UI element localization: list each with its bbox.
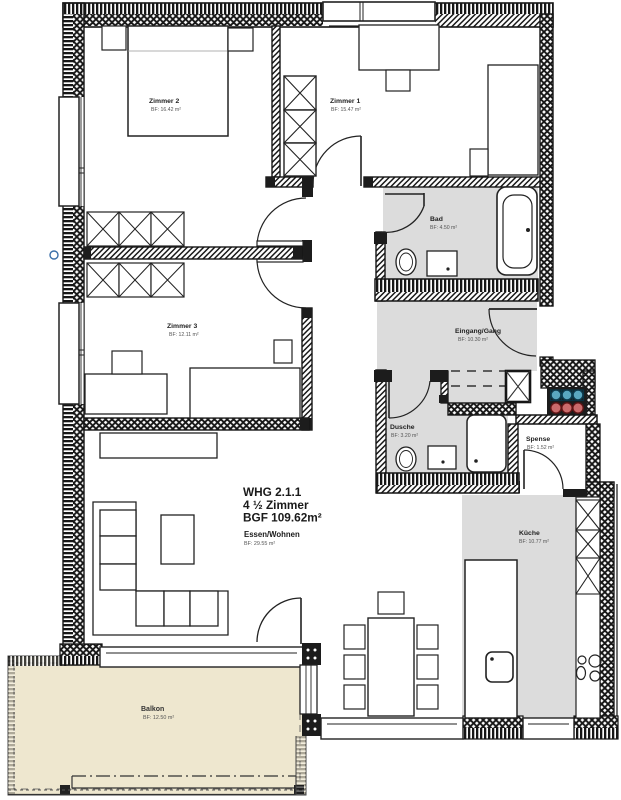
svg-text:BGF 109.62m²: BGF 109.62m² [243,511,322,525]
svg-text:WHG 2.1.1: WHG 2.1.1 [243,485,302,499]
svg-text:Spense: Spense [526,436,550,443]
svg-text:BF: 12.50 m²: BF: 12.50 m² [143,715,174,721]
svg-text:Eingang/Gang: Eingang/Gang [455,328,501,335]
svg-text:Essen/Wohnen: Essen/Wohnen [244,530,300,539]
svg-text:BF: 1.52 m²: BF: 1.52 m² [527,445,554,451]
svg-text:BF: 3.20 m²: BF: 3.20 m² [391,433,418,439]
svg-text:Zimmer 1: Zimmer 1 [330,98,360,105]
svg-text:BF: 12.11 m²: BF: 12.11 m² [169,332,199,338]
svg-text:Dusche: Dusche [390,424,415,431]
svg-text:BF: 29.55 m²: BF: 29.55 m² [244,541,275,547]
svg-text:BF: 10.77 m²: BF: 10.77 m² [519,539,549,545]
svg-text:Küche: Küche [519,530,540,537]
svg-text:BF: 10.30 m²: BF: 10.30 m² [458,337,488,343]
svg-text:Balkon: Balkon [141,706,164,713]
svg-text:BF: 4.50 m²: BF: 4.50 m² [430,225,457,231]
svg-text:BF: 16.42 m²: BF: 16.42 m² [151,107,181,113]
svg-text:Zimmer 2: Zimmer 2 [149,98,179,105]
svg-text:BF: 15.47 m²: BF: 15.47 m² [331,107,361,113]
svg-text:Bad: Bad [430,216,443,223]
svg-text:Zimmer 3: Zimmer 3 [167,323,197,330]
